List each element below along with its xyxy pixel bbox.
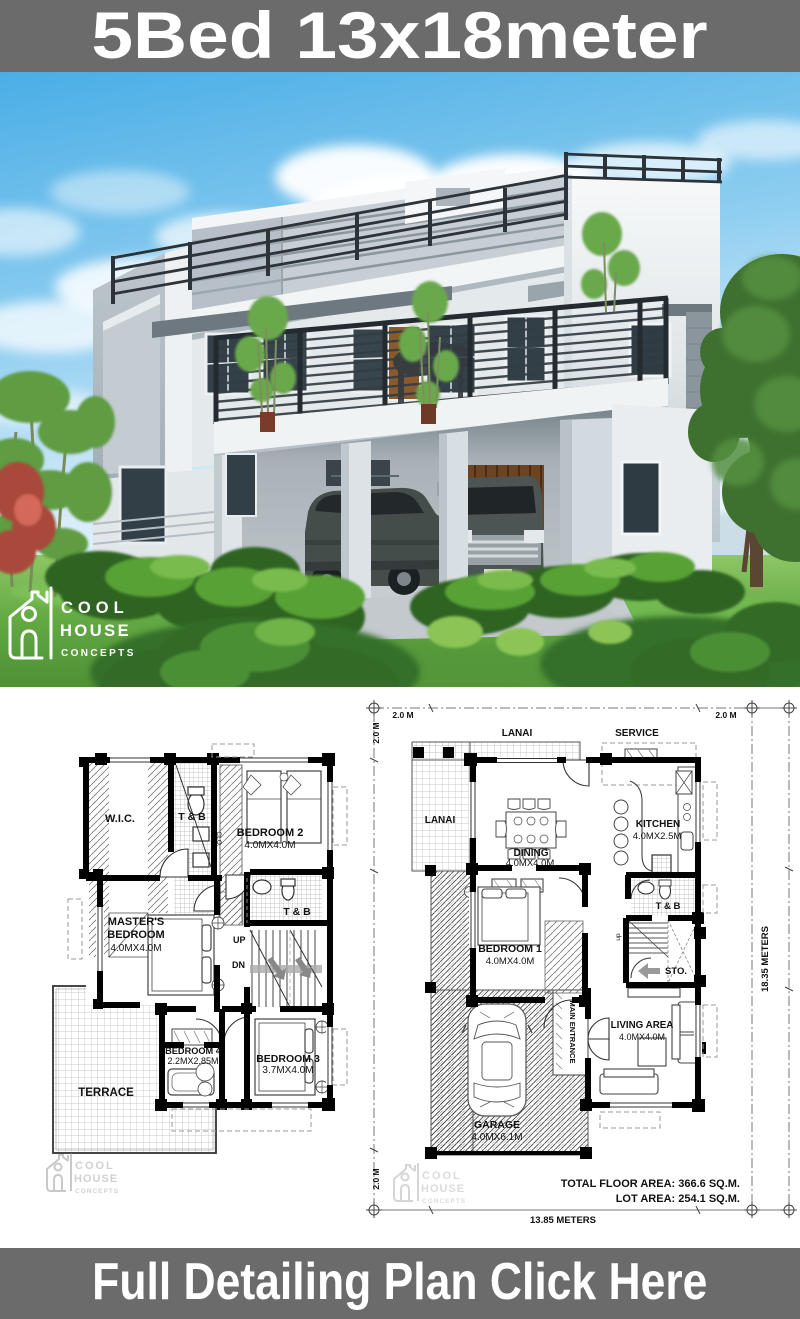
svg-text:4.0MX4.0M: 4.0MX4.0M (619, 1032, 665, 1042)
svg-text:BEDROOM: BEDROOM (107, 929, 164, 941)
svg-text:CLO.: CLO. (215, 831, 222, 846)
svg-text:T & B: T & B (283, 906, 311, 918)
svg-text:BEDROOM 2: BEDROOM 2 (237, 827, 304, 839)
svg-text:MASTER'S: MASTER'S (108, 916, 164, 928)
svg-text:COOL: COOL (422, 1170, 462, 1182)
svg-text:CONCEPTS: CONCEPTS (61, 648, 136, 659)
svg-text:4.0MX2.5M: 4.0MX2.5M (633, 831, 682, 842)
svg-text:4.0MX4.0M: 4.0MX4.0M (486, 956, 535, 967)
svg-text:T & B: T & B (178, 811, 206, 823)
svg-text:up: up (615, 933, 622, 941)
svg-text:2.0 M: 2.0 M (371, 1168, 381, 1189)
svg-text:HOUSE: HOUSE (60, 622, 131, 640)
svg-text:TOTAL FLOOR AREA: 366.6 SQ.M.: TOTAL FLOOR AREA: 366.6 SQ.M. (561, 1178, 740, 1190)
svg-text:TERRACE: TERRACE (78, 1087, 134, 1099)
svg-text:BEDROOM 4: BEDROOM 4 (165, 1046, 222, 1056)
svg-text:LANAI: LANAI (502, 728, 533, 739)
svg-text:COOL: COOL (61, 599, 129, 617)
svg-text:T & B: T & B (656, 901, 681, 912)
svg-text:BEDROOM 1: BEDROOM 1 (478, 943, 542, 955)
svg-text:2.2MX2.85M: 2.2MX2.85M (167, 1056, 218, 1066)
svg-text:4.0MX4.0M: 4.0MX4.0M (244, 840, 295, 851)
svg-text:BEDROOM 3: BEDROOM 3 (256, 1053, 320, 1065)
svg-text:HOUSE: HOUSE (74, 1173, 118, 1185)
svg-text:LIVING AREA: LIVING AREA (611, 1020, 674, 1031)
svg-text:HOUSE: HOUSE (421, 1183, 465, 1195)
svg-text:2.0 M: 2.0 M (371, 722, 381, 743)
svg-text:STO.: STO. (665, 966, 687, 977)
svg-text:4.0MX4.0M: 4.0MX4.0M (110, 943, 161, 954)
svg-text:DN: DN (232, 960, 245, 970)
svg-text:3.7MX4.0M: 3.7MX4.0M (262, 1065, 313, 1076)
svg-text:LANAI: LANAI (425, 815, 456, 826)
svg-text:COOL: COOL (75, 1160, 115, 1172)
svg-text:UP: UP (233, 935, 246, 945)
svg-text:2.0 M: 2.0 M (392, 710, 413, 720)
svg-text:LOT AREA: 254.1 SQ.M.: LOT AREA: 254.1 SQ.M. (616, 1193, 740, 1205)
svg-text:SERVICE: SERVICE (615, 728, 659, 739)
svg-text:KITCHEN: KITCHEN (636, 819, 680, 830)
svg-text:MAIN ENTRANCE: MAIN ENTRANCE (568, 1001, 577, 1064)
svg-text:W.I.C.: W.I.C. (105, 813, 135, 825)
svg-text:13.85 METERS: 13.85 METERS (530, 1215, 596, 1226)
svg-text:CONCEPTS: CONCEPTS (75, 1188, 119, 1195)
svg-text:2.0 M: 2.0 M (715, 710, 736, 720)
svg-text:CONCEPTS: CONCEPTS (422, 1198, 466, 1205)
svg-text:18.35 METERS: 18.35 METERS (760, 926, 771, 992)
svg-text:4.0MX6.1M: 4.0MX6.1M (471, 1132, 522, 1143)
svg-text:GARAGE: GARAGE (474, 1119, 520, 1131)
